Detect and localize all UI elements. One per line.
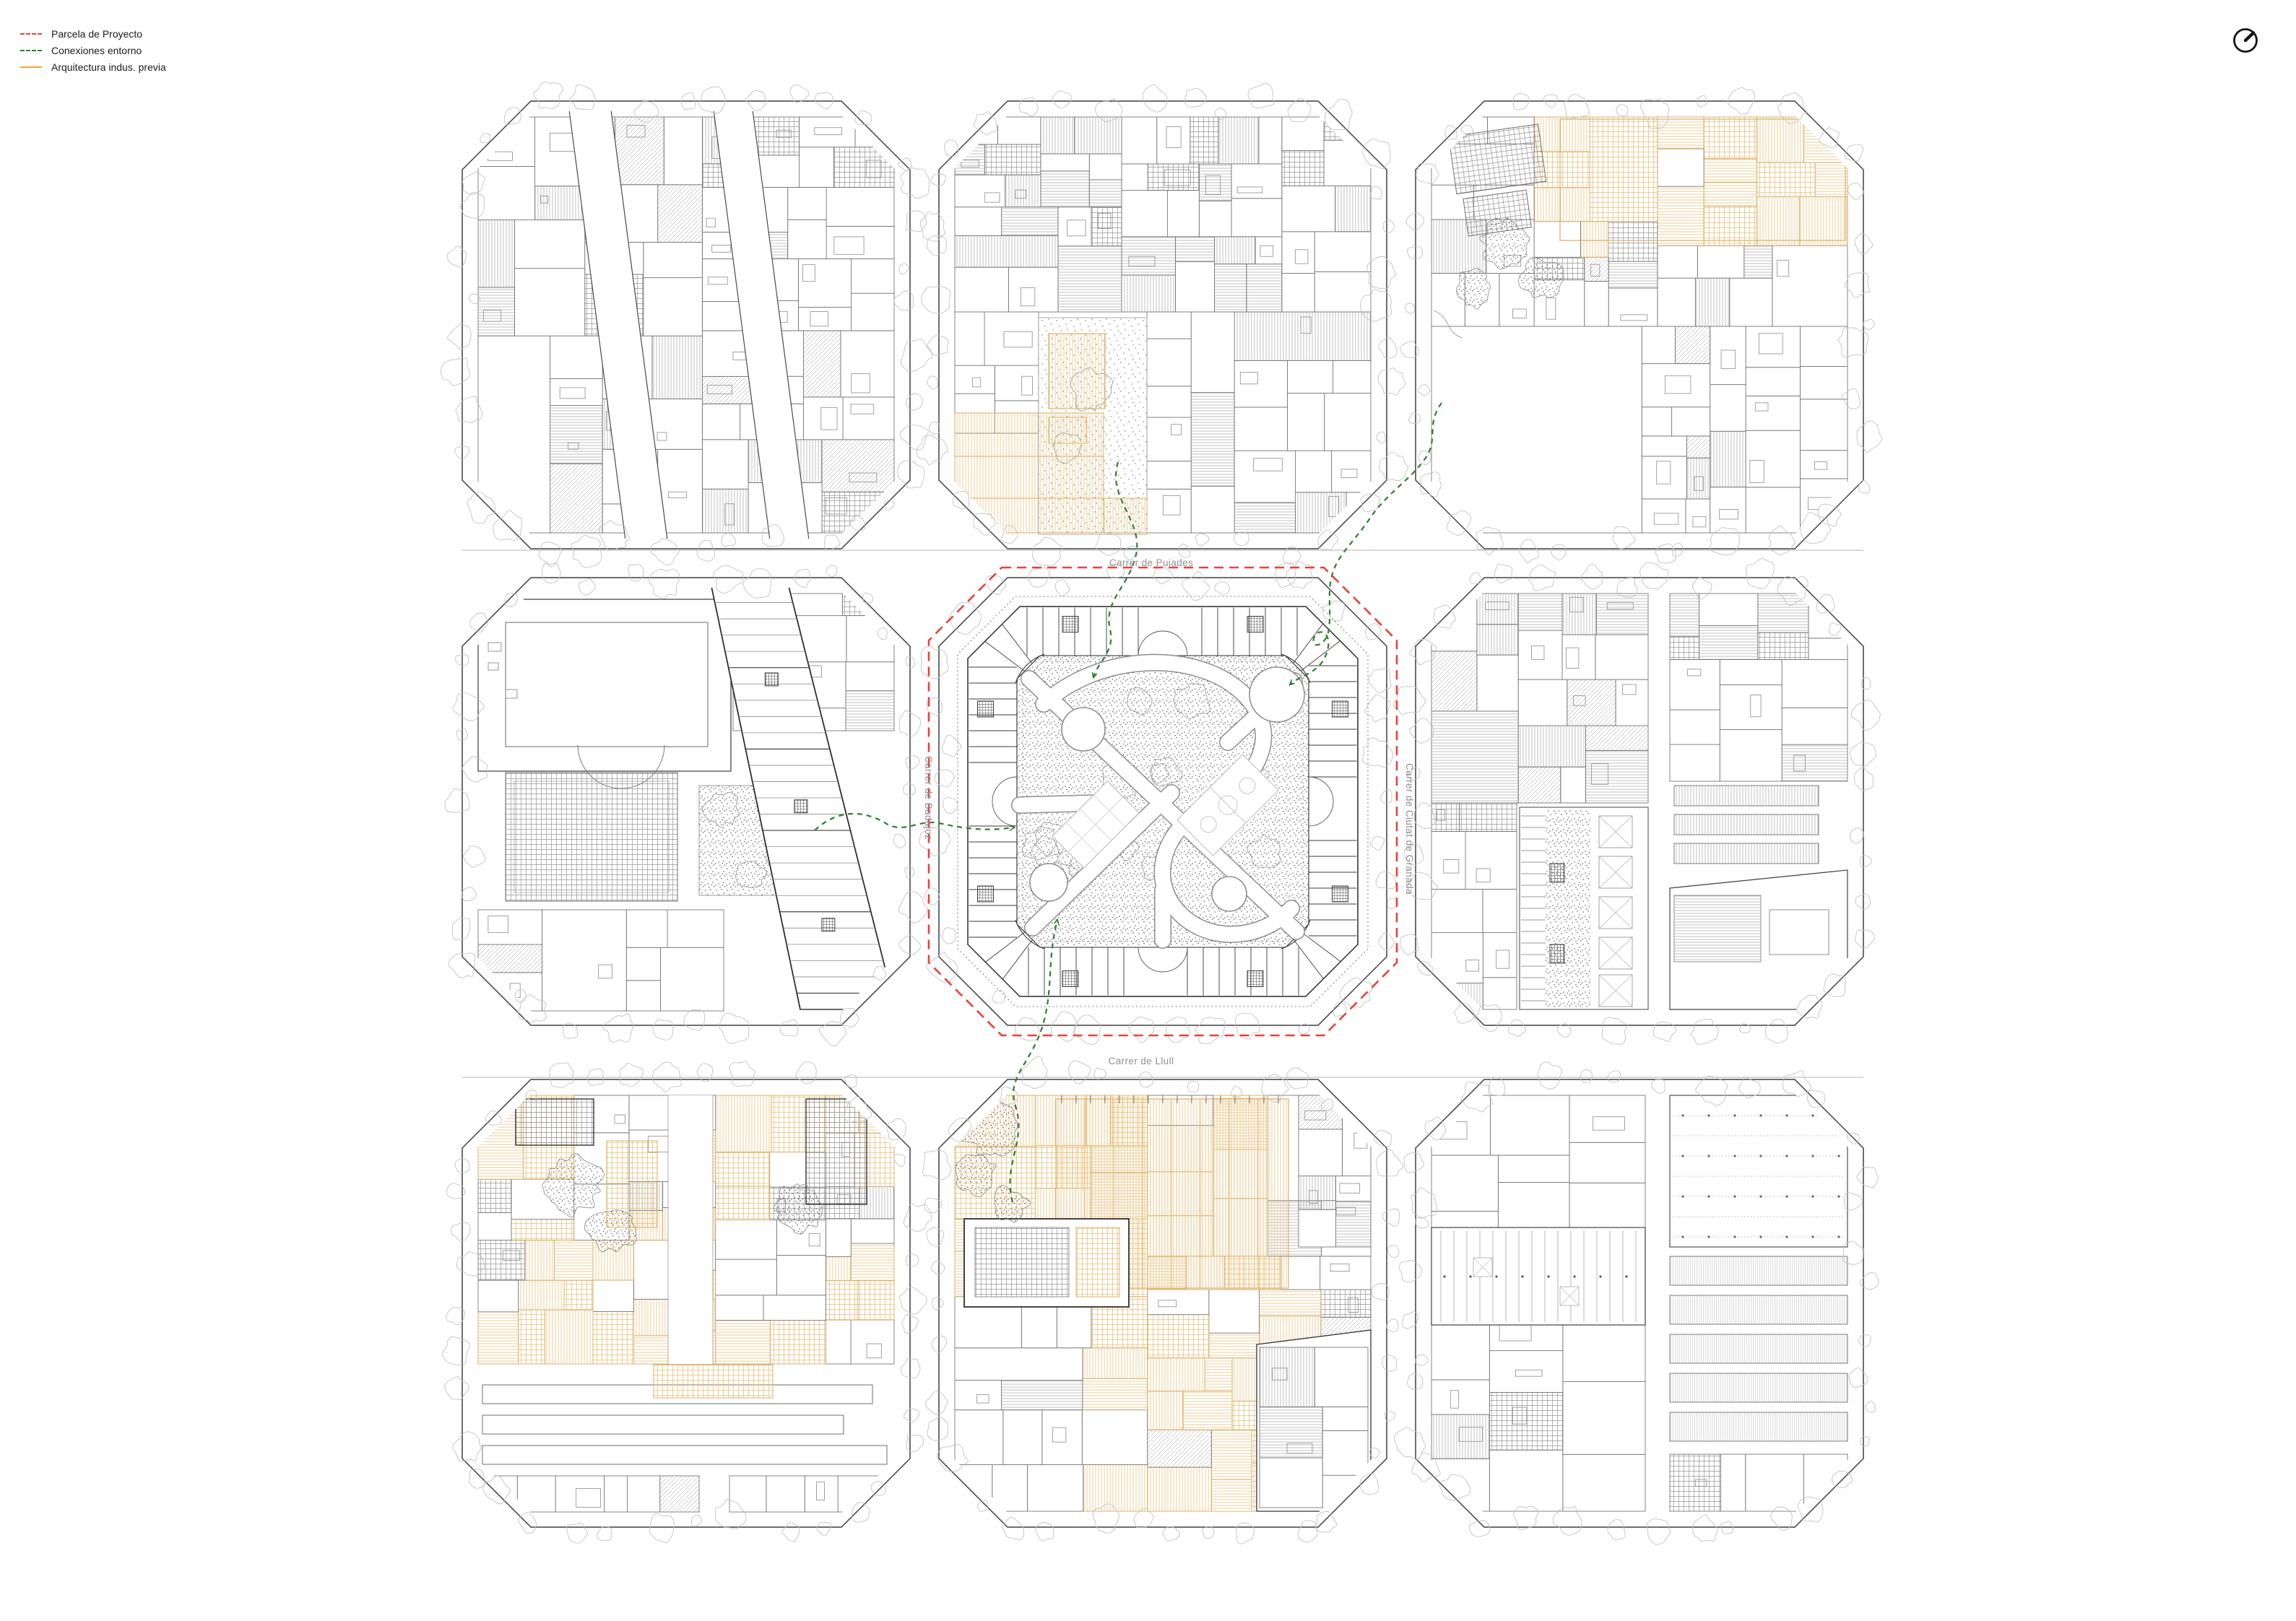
legend-label: Parcela de Proyecto [51,29,142,39]
legend-swatch-previous-industrial [20,66,42,68]
block-top-middle-buildings [955,117,1371,534]
block-bottom-right [1394,1062,1879,1544]
drawing-sheet: Carrer de Pujades Carrer de Llull Carrer… [0,0,2296,1621]
legend-item-context-connections: Conexiones entorno [20,45,166,56]
block-bottom-middle [923,1056,1403,1544]
legend-swatch-context-connections [20,50,42,51]
block-top-right [1400,88,1882,563]
legend-item-project-parcel: Parcela de Proyecto [20,29,166,39]
legend: Parcela de Proyecto Conexiones entorno A… [20,29,166,79]
legend-label: Arquitectura indus. previa [51,62,166,72]
block-top-right-buildings [1431,117,1847,533]
street-label-north: Carrer de Pujades [1109,557,1193,568]
legend-swatch-project-parcel [20,33,42,35]
street-label-east: Carrer de Ciutat de Granada [1404,763,1415,895]
masterplan-drawing: Carrer de Pujades Carrer de Llull Carrer… [0,0,2296,1621]
block-bottom-middle-buildings [955,1095,1371,1511]
block-top-middle [917,84,1408,566]
block-top-left [441,82,932,568]
block-top-left-buildings [478,110,894,540]
legend-label: Conexiones entorno [51,45,142,56]
block-bottom-left [442,1061,931,1544]
block-middle-right-buildings [1431,594,1847,1009]
city-blocks-layer [441,82,1881,1544]
north-indicator [2229,24,2262,57]
legend-item-previous-industrial: Arquitectura indus. previa [20,62,166,72]
block-center-buildings [958,596,1368,1007]
block-center [919,562,1398,1045]
block-bottom-left-buildings [478,1095,894,1512]
street-label-south: Carrer de Llull [1109,1056,1174,1066]
block-middle-left [445,563,927,1046]
block-middle-right [1393,558,1880,1045]
north-arrow-icon [2229,24,2262,57]
street-label-west: Carrer de Badajoz [923,756,934,840]
